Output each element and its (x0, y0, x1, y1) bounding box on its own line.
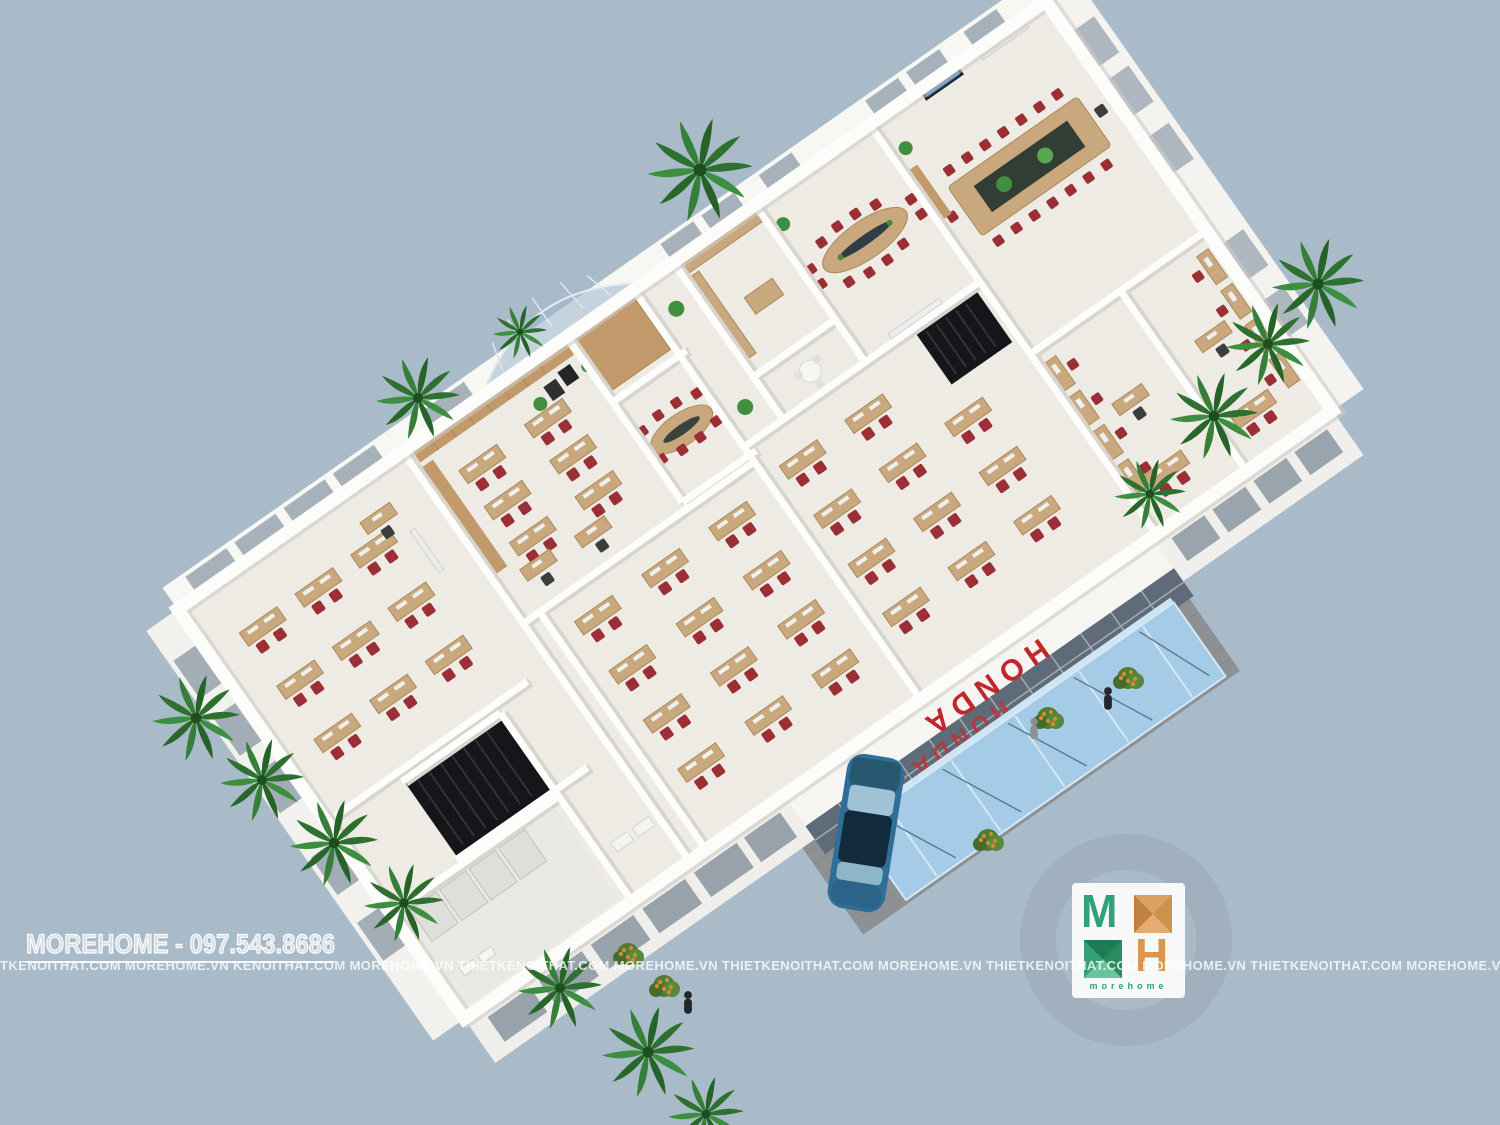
logo-letter-m: M (1081, 889, 1117, 933)
logo-wordmark: morehome (1072, 981, 1185, 991)
watermark-strip-text: TKENOITHAT.COM MOREHOME.VN KENOITHAT.COM… (0, 958, 1500, 973)
logo-orange-square-icon (1134, 895, 1172, 933)
morehome-logo: M H morehome (1072, 883, 1185, 998)
render-canvas: HONDA HONDA (0, 0, 1500, 1125)
